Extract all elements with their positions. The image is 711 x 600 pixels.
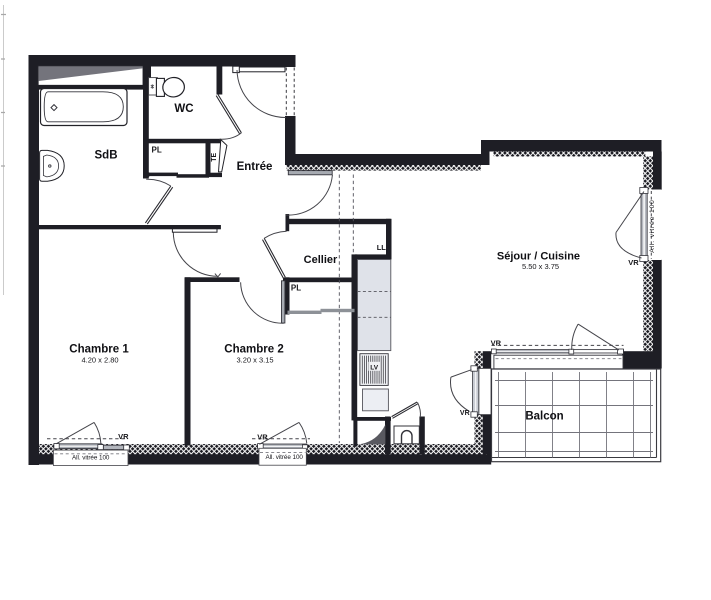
svg-text:LV: LV xyxy=(370,364,378,371)
svg-text:VR: VR xyxy=(118,432,129,441)
svg-text:VR: VR xyxy=(628,258,639,267)
svg-text:All. vitrée 100: All. vitrée 100 xyxy=(265,454,303,461)
svg-text:VR: VR xyxy=(491,338,502,347)
svg-text:VR: VR xyxy=(257,432,268,441)
svg-text:3.20 x 3.15: 3.20 x 3.15 xyxy=(236,355,273,364)
svg-text:Cellier: Cellier xyxy=(304,254,338,266)
svg-text:SdB: SdB xyxy=(95,150,118,162)
svg-text:PL: PL xyxy=(291,284,301,293)
svg-text:4.20 x 2.80: 4.20 x 2.80 xyxy=(81,355,118,364)
svg-text:Séjour / Cuisine: Séjour / Cuisine xyxy=(497,250,580,262)
svg-text:All. vitrée 100: All. vitrée 100 xyxy=(649,199,656,252)
svg-text:All. vitrée 100: All. vitrée 100 xyxy=(72,454,110,461)
svg-text:Chambre 1: Chambre 1 xyxy=(69,343,129,355)
svg-text:LL: LL xyxy=(377,243,387,252)
svg-text:Chambre 2: Chambre 2 xyxy=(224,343,283,355)
svg-text:WC: WC xyxy=(174,103,193,115)
svg-text:VR: VR xyxy=(460,410,470,417)
svg-text:TE: TE xyxy=(211,153,218,162)
svg-text:Balcon: Balcon xyxy=(525,411,563,423)
svg-text:PL: PL xyxy=(152,145,162,154)
svg-text:Entrée: Entrée xyxy=(237,161,273,173)
svg-text:5.50 x 3.75: 5.50 x 3.75 xyxy=(522,262,559,271)
